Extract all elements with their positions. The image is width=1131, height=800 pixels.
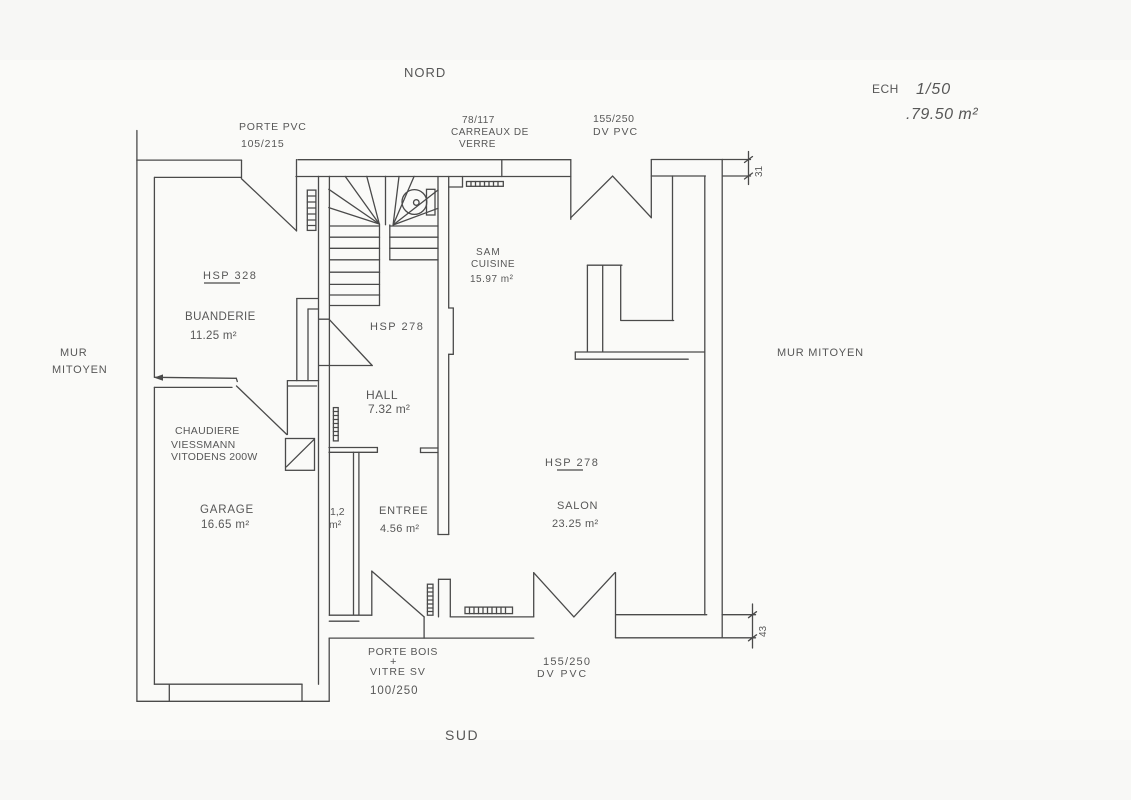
svg-text:DV PVC: DV PVC (593, 126, 638, 138)
svg-text:VITRE SV: VITRE SV (370, 666, 426, 678)
svg-text:HALL: HALL (366, 388, 398, 402)
svg-text:MITOYEN: MITOYEN (52, 364, 108, 376)
svg-text:HSP 328: HSP 328 (203, 270, 257, 282)
svg-text:CHAUDIERE: CHAUDIERE (175, 425, 240, 437)
svg-text:ECH: ECH (872, 82, 899, 96)
svg-text:VITODENS 200W: VITODENS 200W (171, 451, 257, 463)
svg-text:4.56 m²: 4.56 m² (380, 523, 419, 535)
svg-text:VIESSMANN: VIESSMANN (171, 439, 236, 451)
svg-text:m²: m² (329, 519, 342, 531)
svg-text:ENTREE: ENTREE (379, 505, 428, 517)
svg-text:155/250: 155/250 (593, 113, 634, 125)
svg-text:PORTE BOIS: PORTE BOIS (368, 646, 438, 658)
svg-text:15.97 m²: 15.97 m² (470, 274, 514, 285)
svg-text:11.25 m²: 11.25 m² (190, 330, 237, 342)
svg-text:DV PVC: DV PVC (537, 668, 588, 680)
svg-text:100/250: 100/250 (370, 685, 419, 697)
svg-text:GARAGE: GARAGE (200, 504, 254, 516)
svg-text:23.25 m²: 23.25 m² (552, 518, 599, 530)
svg-text:MUR: MUR (60, 347, 87, 359)
svg-text:PORTE PVC: PORTE PVC (239, 121, 307, 133)
svg-text:SAM: SAM (476, 247, 501, 258)
svg-text:CARREAUX DE: CARREAUX DE (451, 127, 529, 138)
svg-text:MUR MITOYEN: MUR MITOYEN (777, 347, 864, 359)
svg-text:31: 31 (754, 165, 765, 177)
svg-text:16.65 m²: 16.65 m² (201, 519, 250, 531)
svg-text:CUISINE: CUISINE (471, 259, 515, 270)
svg-text:78/117: 78/117 (462, 115, 495, 126)
svg-text:NORD: NORD (404, 65, 446, 80)
svg-text:43: 43 (758, 625, 769, 637)
svg-text:155/250: 155/250 (543, 656, 591, 668)
svg-text:HSP 278: HSP 278 (370, 321, 424, 333)
svg-text:BUANDERIE: BUANDERIE (185, 311, 256, 323)
svg-text:.79.50 m²: .79.50 m² (906, 106, 978, 123)
svg-text:1,2: 1,2 (330, 506, 345, 518)
svg-text:7.32 m²: 7.32 m² (368, 402, 410, 416)
svg-text:VERRE: VERRE (459, 139, 496, 150)
svg-text:HSP 278: HSP 278 (545, 457, 599, 469)
svg-text:1/50: 1/50 (916, 81, 951, 98)
svg-text:105/215: 105/215 (241, 138, 285, 150)
svg-text:SALON: SALON (557, 500, 598, 512)
svg-text:SUD: SUD (445, 727, 479, 743)
